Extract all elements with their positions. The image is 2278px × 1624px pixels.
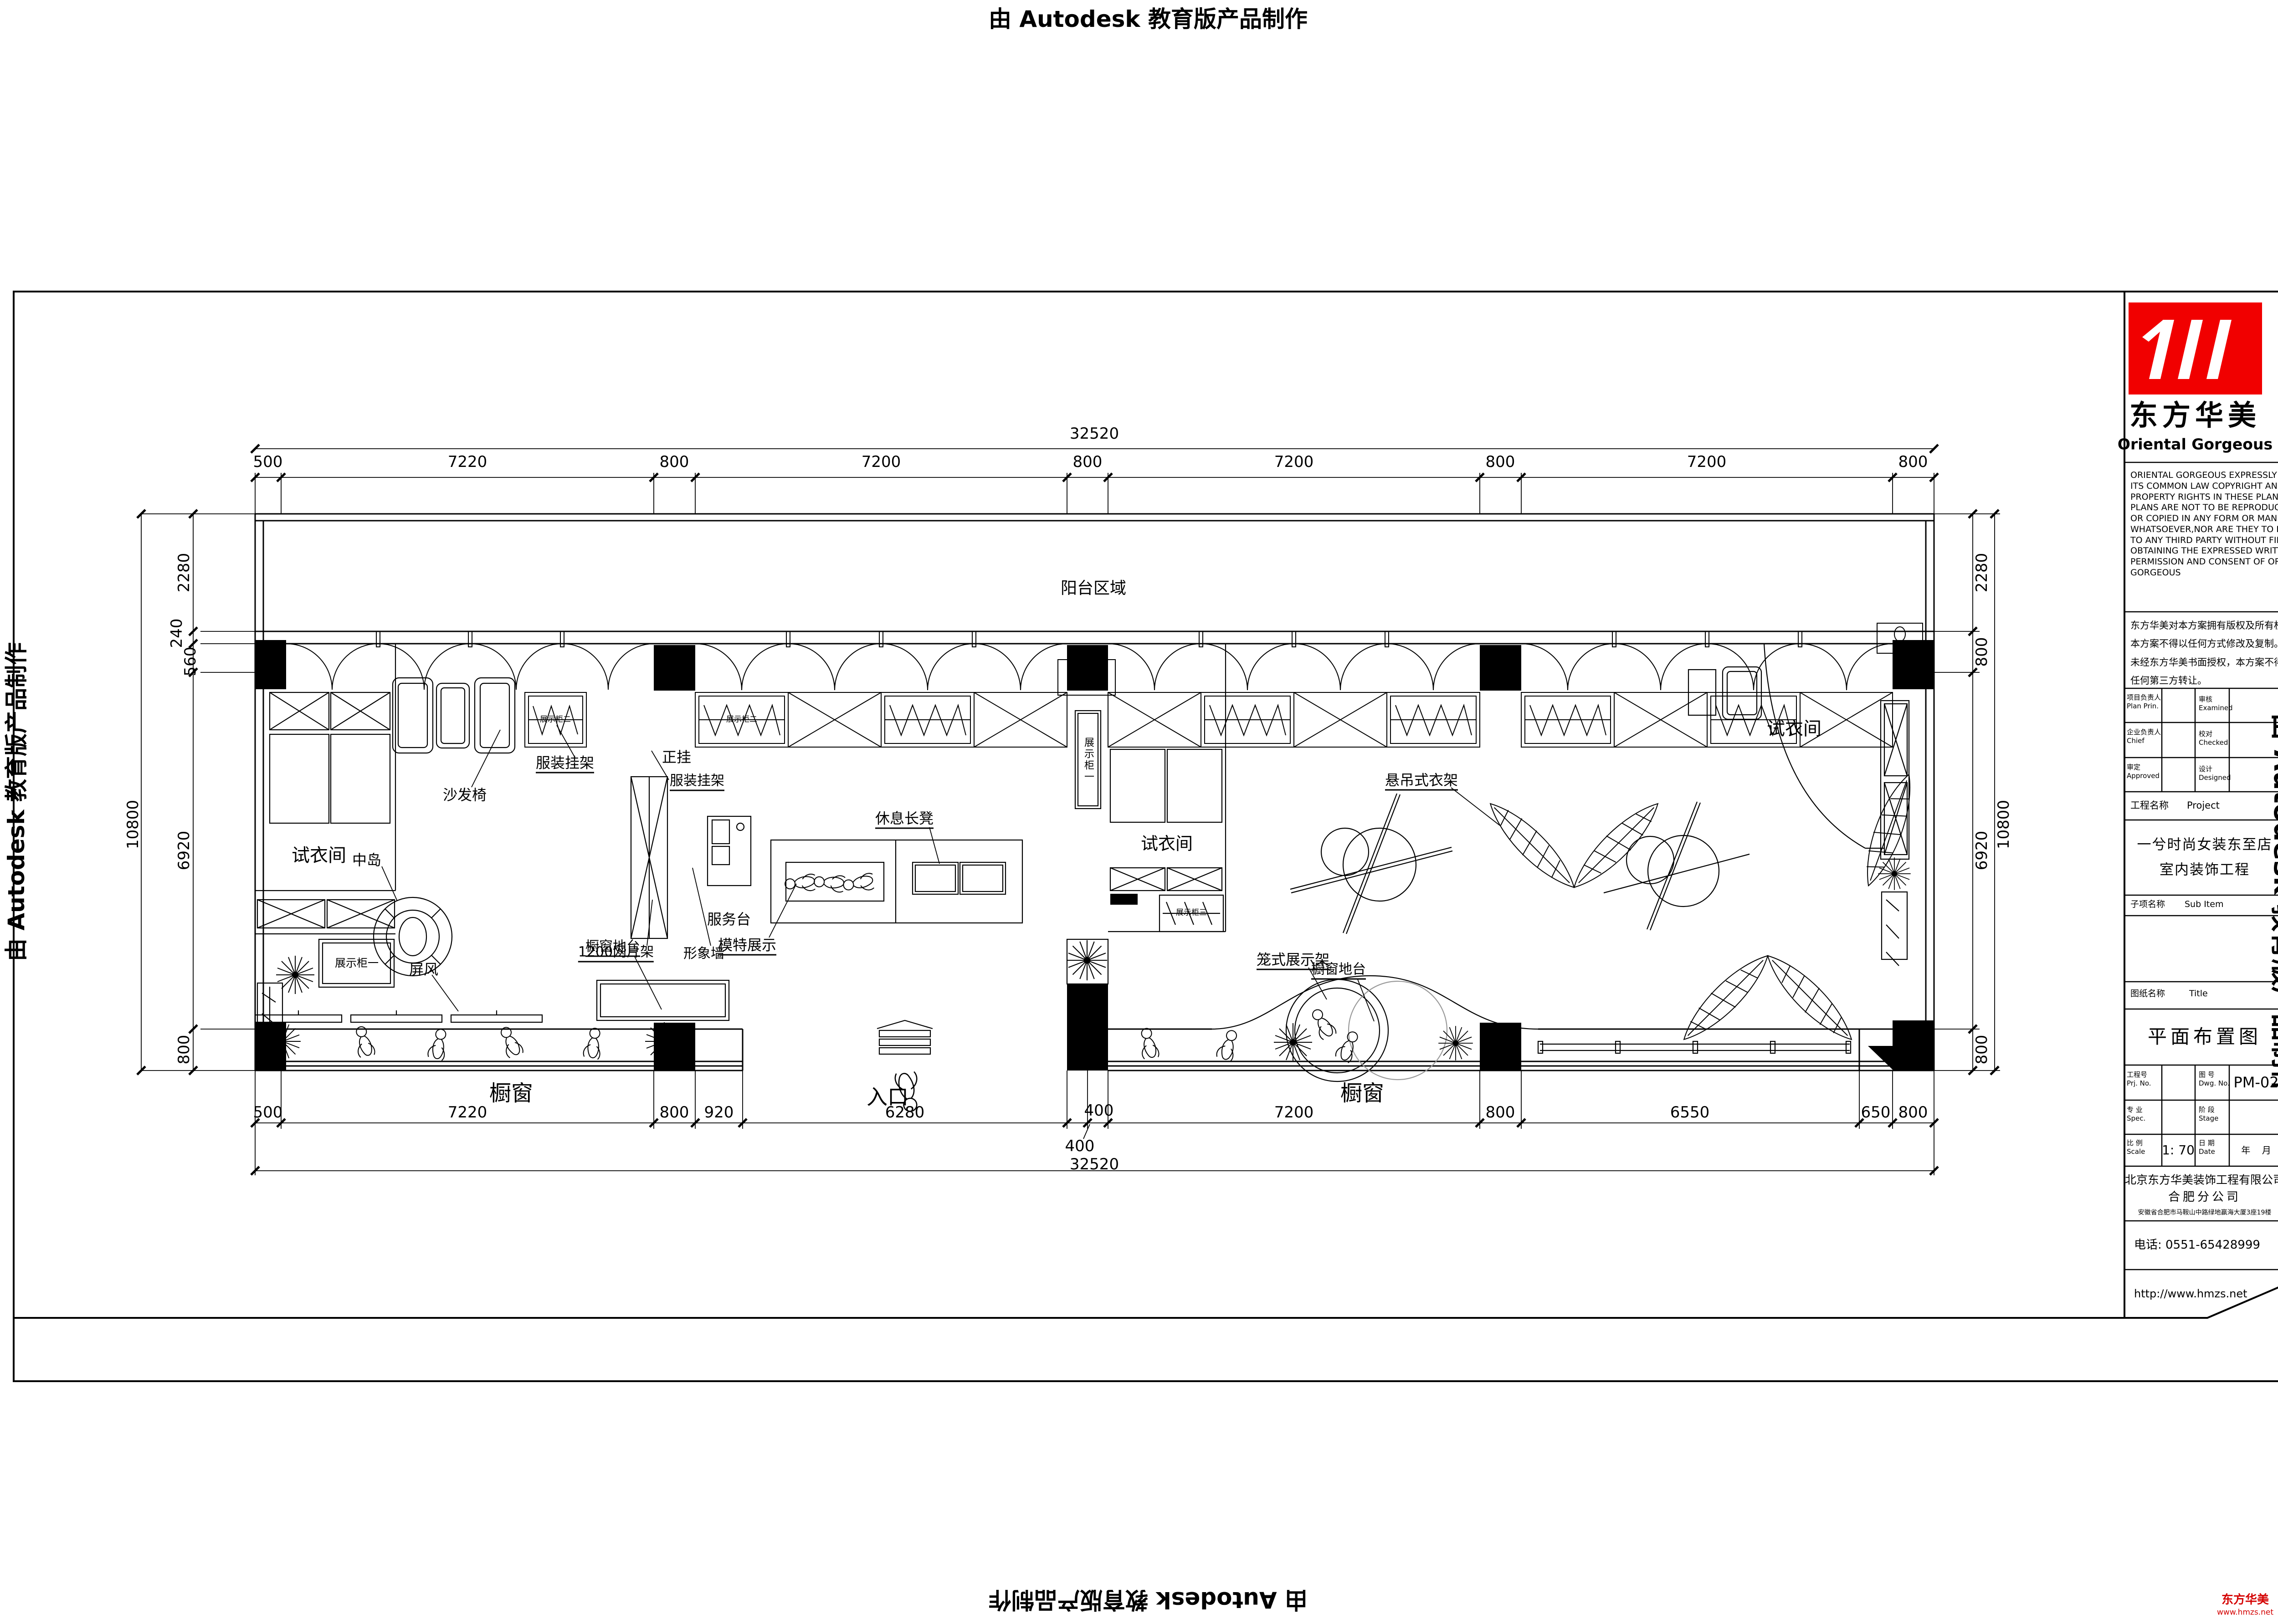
dim-bottom-4: 6280 [885, 1105, 925, 1120]
sheet-label-en: Title [2189, 989, 2208, 998]
project-name-line2: 室内装饰工程 [2160, 863, 2250, 877]
floor-plan-linework [0, 0, 2278, 1624]
dwg-no-label: 图 号Dwg. No. [2199, 1071, 2230, 1088]
project-label-cn: 工程名称 [2130, 801, 2169, 810]
label-bench: 休息长凳 [875, 811, 934, 829]
project-label-en: Project [2187, 801, 2220, 810]
label-screen: 屏风 [409, 962, 438, 977]
mannequin-figures [352, 873, 1362, 1113]
leader-lines [382, 725, 1500, 1139]
label-fitting-left: 试衣间 [292, 846, 346, 865]
company-address: 安徽省合肥市马鞍山中路绿地赢海大厦3座19楼 [2138, 1209, 2272, 1216]
dim-bottom-overall: 32520 [1070, 1157, 1119, 1172]
label-cabinet-1b: 展示柜一 [1083, 737, 1093, 783]
dim-bottom-8: 800 [1486, 1105, 1515, 1120]
company-phone: 电话: 0551-65428999 [2134, 1239, 2260, 1251]
dim-top-3: 7200 [862, 454, 901, 470]
dim-bottom-2: 800 [660, 1105, 689, 1120]
screen-and-platforms [255, 939, 1851, 1054]
dim-left-4: 800 [176, 1035, 192, 1065]
company-name-line2: 合肥分公司 [2168, 1191, 2241, 1203]
dim-left-overall: 10800 [125, 800, 141, 849]
dim-left-1: 240 [169, 619, 185, 648]
label-fitting-right: 试衣间 [1767, 720, 1821, 738]
dim-right-3: 800 [1974, 1035, 1990, 1065]
date-label: 日 期Date [2199, 1139, 2215, 1156]
dim-bottom-9: 6550 [1670, 1105, 1710, 1120]
dim-right-2: 6920 [1974, 831, 1990, 871]
project-name-line1: 一兮时尚女装东至店 [2137, 838, 2273, 852]
label-window-left: 橱窗 [489, 1082, 533, 1104]
field-plan-prin: 项目负责人Plan Prin. [2127, 693, 2161, 711]
label-service-desk: 服务台 [707, 912, 751, 927]
dim-bottom-1: 7220 [448, 1105, 487, 1120]
logo-m-icon [2142, 320, 2232, 379]
watermark-brand: 东方华美 [2222, 1594, 2269, 1606]
label-fitting-mid: 试衣间 [1141, 835, 1193, 852]
copyright-cn: 东方华美对本方案拥有版权及所有权。 本方案不得以任何方式修改及复制。 未经东方华… [2130, 620, 2278, 686]
field-approved: 审定Approved [2127, 763, 2160, 780]
dim-bottom-3: 920 [704, 1105, 734, 1120]
logo-text-en: Oriental Gorgeous [2118, 437, 2273, 452]
dim-bottom-10: 650 [1861, 1105, 1891, 1120]
dim-top-6: 800 [1486, 454, 1515, 470]
dim-bottom-5: 400 [1084, 1103, 1114, 1118]
sheet-title: 平面布置图 [2148, 1027, 2262, 1046]
mannequin-platform [771, 840, 1022, 923]
company-logo [2129, 302, 2262, 394]
spec-label: 专 业Spec. [2127, 1106, 2145, 1123]
field-designed: 设计Designed [2199, 765, 2231, 782]
label-hanging-rack: 悬吊式衣架 [1385, 773, 1458, 791]
dim-top-4: 800 [1073, 454, 1103, 470]
label-sofa-chair: 沙发椅 [443, 788, 487, 802]
dim-bottom-6: 400 [1065, 1138, 1095, 1154]
watermark-site: www.hmzs.net [2217, 1609, 2273, 1617]
field-checked: 校对Checked [2199, 730, 2228, 747]
label-mannequin-display: 模特展示 [718, 938, 776, 956]
stamp-left: 由 Autodesk 教育版产品制作 [5, 642, 28, 961]
label-image-wall: 形象墙 [683, 947, 724, 961]
label-rack-left: 服装挂架 [536, 756, 594, 774]
dim-bottom-11: 800 [1898, 1105, 1928, 1120]
dim-right-overall: 10800 [1996, 800, 2011, 849]
scale-label: 比 例Scale [2127, 1139, 2145, 1156]
drawing-sheet: 由 Autodesk 教育版产品制作 由 Autodesk 教育版产品制作 由 … [0, 0, 2278, 1624]
dim-right-0: 2280 [1974, 553, 1990, 593]
company-name-line1: 北京东方华美装饰工程有限公司 [2125, 1174, 2278, 1186]
copyright-en: ORIENTAL GORGEOUS EXPRESSLY RESERVESITS … [2130, 470, 2278, 579]
label-platform-left: 橱窗地台 [585, 940, 640, 957]
stamp-top: 由 Autodesk 教育版产品制作 [989, 8, 1308, 31]
label-rack-right: 服装挂架 [670, 774, 724, 791]
columns [255, 640, 1934, 1071]
dim-top-0: 500 [253, 454, 283, 470]
label-cage-rack: 笼式展示架 [1257, 953, 1329, 970]
stage-label: 阶 段Stage [2199, 1106, 2218, 1123]
dim-top-8: 800 [1898, 454, 1928, 470]
dim-left-2: 560 [183, 647, 198, 676]
prj-no-label: 工程号Prj. No. [2127, 1071, 2151, 1088]
label-balcony: 阳台区域 [1061, 580, 1126, 597]
dim-top-1: 7220 [448, 454, 487, 470]
company-website: http://www.hmzs.net [2134, 1288, 2247, 1299]
dim-bottom-0: 500 [253, 1105, 283, 1120]
dim-right-1: 800 [1974, 637, 1990, 667]
date-value: 年 月 [2241, 1146, 2271, 1155]
subitem-label-en: Sub Item [2185, 900, 2223, 909]
label-cabinet-2b: 展示柜二 [726, 716, 757, 724]
dim-left-3: 6920 [176, 831, 192, 871]
label-front-hang: 正挂 [662, 750, 691, 764]
field-chief: 企业负责人Chief [2127, 728, 2161, 745]
dwg-no-value: PM-02 [2233, 1075, 2278, 1090]
dim-top-5: 7200 [1274, 454, 1314, 470]
subitem-label-cn: 子项名称 [2130, 900, 2165, 909]
dim-top-2: 800 [660, 454, 689, 470]
stamp-right: 由 Autodesk 教育版产品制作 [2270, 713, 2278, 1096]
stamp-bottom: 由 Autodesk 教育版产品制作 [989, 1588, 1308, 1611]
logo-text-cn: 东方华美 [2129, 401, 2261, 430]
leaf-displays [1481, 770, 1922, 1049]
label-cabinet-2a: 展示柜二 [540, 716, 571, 724]
scale-value: 1: 70 [2162, 1144, 2195, 1157]
sheet-label-cn: 图纸名称 [2130, 989, 2165, 998]
label-island: 中岛 [352, 853, 381, 867]
label-window-right: 橱窗 [1340, 1082, 1384, 1104]
label-cabinet-3: 展示柜三 [1176, 909, 1207, 917]
dim-top-overall: 32520 [1070, 426, 1119, 441]
dim-left-0: 2280 [176, 553, 192, 593]
dim-bottom-7: 7200 [1274, 1105, 1314, 1120]
field-examined: 审核Examined [2199, 695, 2233, 712]
dim-top-7: 7200 [1687, 454, 1727, 470]
label-cabinet-1: 展示柜一 [335, 958, 379, 968]
